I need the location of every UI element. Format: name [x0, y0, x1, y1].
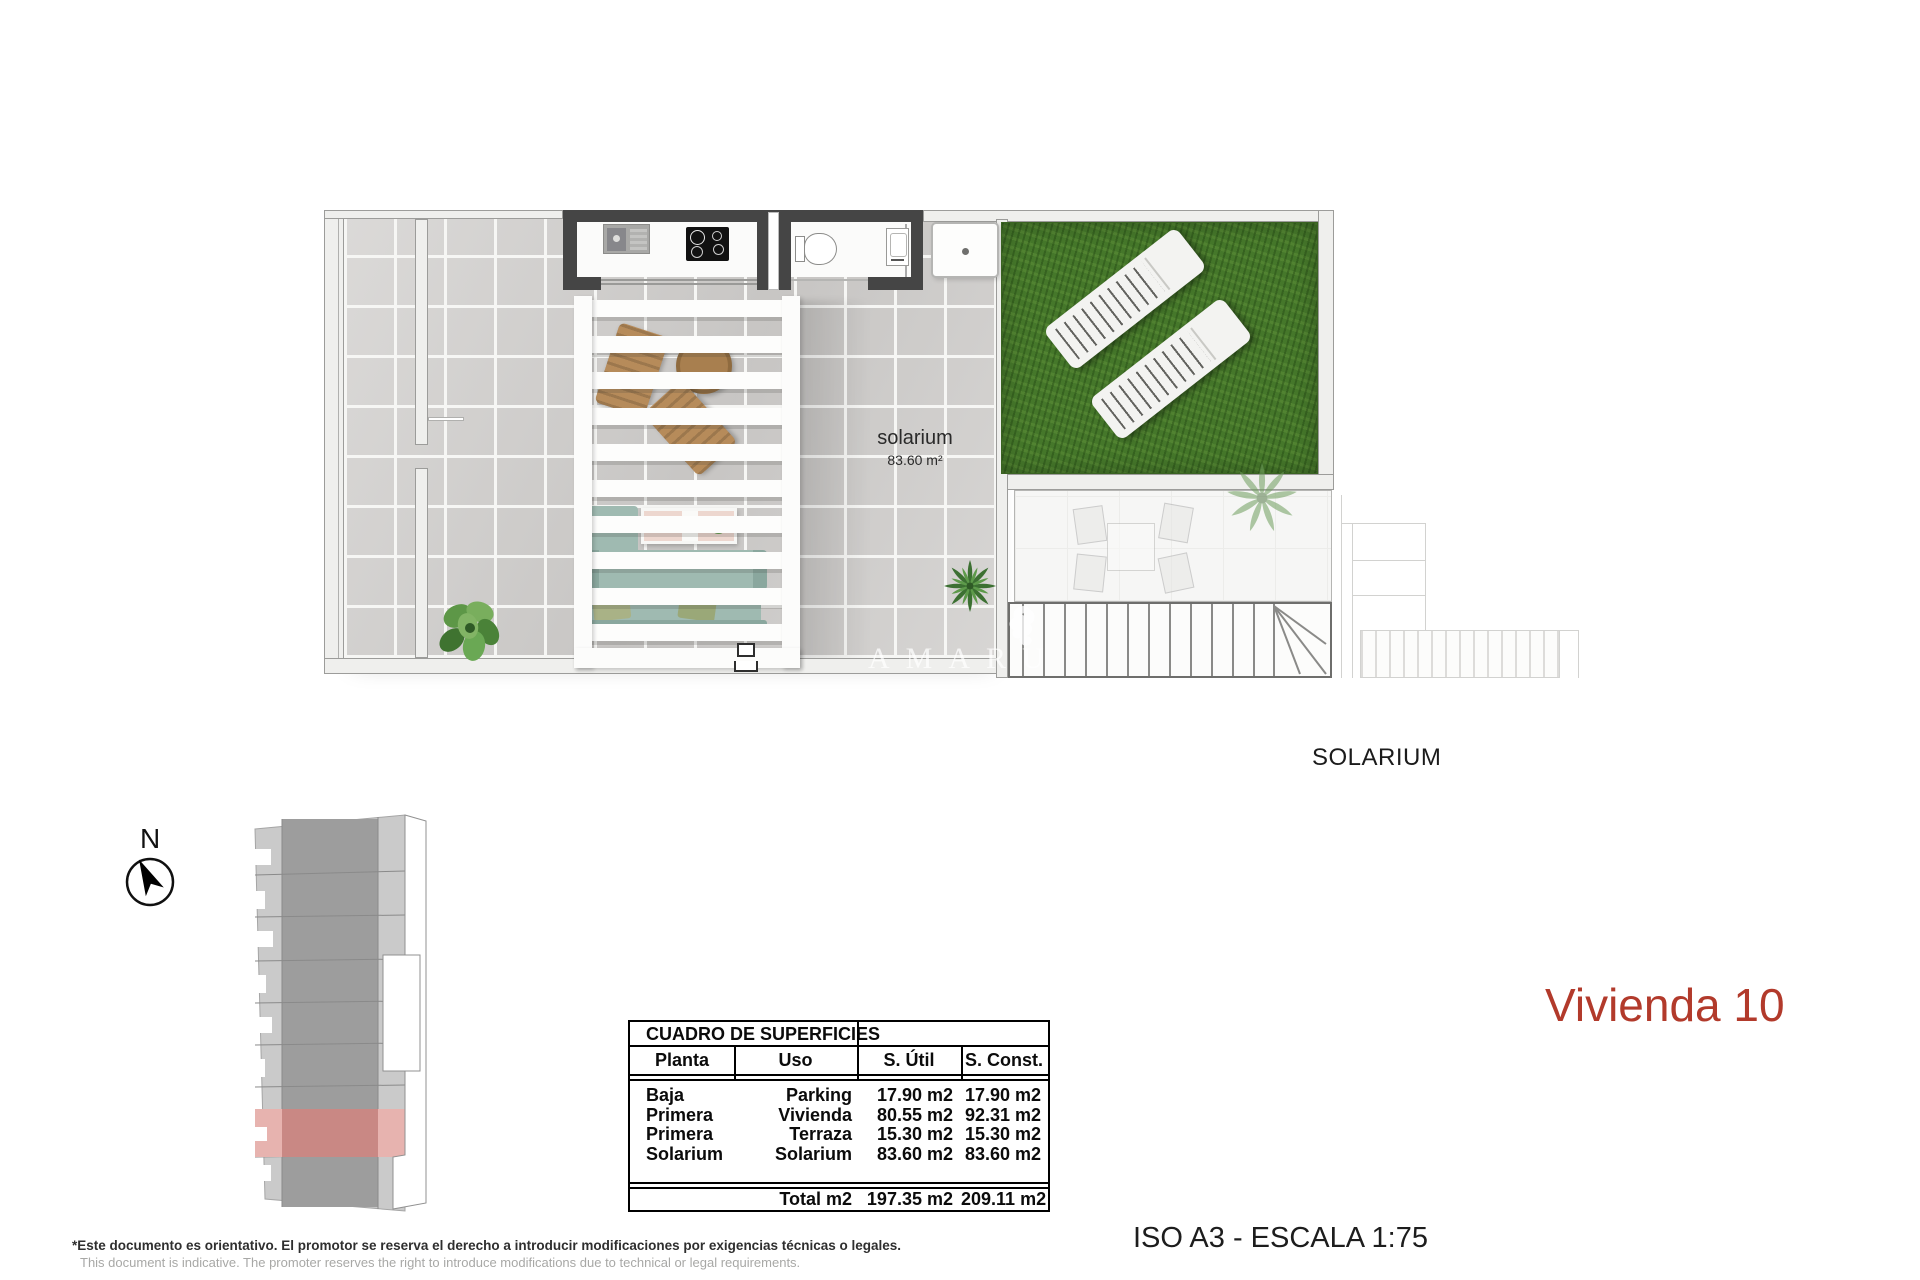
surfaces-header: Planta: [630, 1047, 734, 1074]
toilet-bowl: [804, 233, 837, 265]
shower-tray: [931, 222, 999, 278]
surface-cell: 17.90 m2: [961, 1086, 1047, 1106]
surfaces-total-row: Total m2 197.35 m2 209.11 m2: [630, 1189, 1048, 1210]
watermark-text: AMARU: [868, 642, 1060, 676]
total-cell: Total m2: [734, 1189, 857, 1210]
surfaces-body: BajaParking17.90 m217.90 m2PrimeraVivien…: [630, 1086, 1048, 1164]
ghost-outline: [1425, 523, 1426, 630]
table-line: [630, 1182, 1048, 1184]
lounger-slats: [1101, 332, 1211, 430]
partition-wall-upper: [415, 219, 428, 445]
floor-plan: solarium 83.60 m² AMARU: [0, 0, 1920, 720]
surfaces-title: CUADRO DE SUPERFICIES: [646, 1024, 880, 1045]
north-arrow: N: [112, 816, 192, 916]
ghost-dining-set: [1063, 495, 1203, 599]
wall-grass-right: [1318, 210, 1334, 490]
kitchen-wall-stub: [563, 277, 601, 290]
ghost-outline: [1352, 560, 1425, 561]
hob-icon: [686, 227, 729, 261]
total-cell: 197.35 m2: [857, 1189, 961, 1210]
ghost-outline: [1352, 595, 1425, 596]
ghost-chair: [1158, 552, 1195, 593]
surface-cell: 83.60 m2: [857, 1145, 961, 1165]
kitchen-counter-track2: [601, 283, 757, 285]
bath-wall-stub: [868, 277, 923, 290]
ghost-staircase: [1360, 630, 1560, 678]
lounger-slats: [1055, 262, 1165, 360]
sink-icon: [603, 224, 650, 254]
table-line: [630, 1079, 1048, 1081]
hob-burner: [713, 244, 724, 255]
service-pillar: [768, 212, 779, 290]
ghost-palm-plant: [1224, 460, 1300, 536]
floor-socket-symbol: [734, 661, 758, 672]
north-label: N: [140, 823, 160, 854]
surface-cell: Solarium: [630, 1145, 734, 1165]
hob-burner: [691, 246, 703, 258]
pergola-shadow: [798, 300, 870, 660]
ghost-table: [1107, 523, 1155, 571]
surface-row: BajaParking17.90 m217.90 m2: [630, 1086, 1048, 1106]
plan-sheet: solarium 83.60 m² AMARU SOLARIUM N: [0, 0, 1920, 1280]
surface-cell: Primera: [630, 1106, 734, 1126]
surface-cell: Solarium: [734, 1145, 857, 1165]
wall-top-left: [324, 210, 563, 219]
surface-cell: Vivienda: [734, 1106, 857, 1126]
hob-burner: [712, 231, 722, 241]
grass-area: [1001, 222, 1318, 474]
surface-row: PrimeraTerraza15.30 m215.30 m2: [630, 1125, 1048, 1145]
palm-plant: [942, 558, 998, 614]
disclaimer-en: This document is indicative. The promote…: [80, 1255, 800, 1270]
surface-cell: 92.31 m2: [961, 1106, 1047, 1126]
pergola-rail-left: [574, 296, 592, 668]
ghost-outline: [1341, 523, 1425, 524]
surface-cell: 15.30 m2: [857, 1125, 961, 1145]
surface-cell: 15.30 m2: [961, 1125, 1047, 1145]
wall-left-line: [338, 212, 339, 672]
room-name: solarium: [855, 427, 975, 449]
washer-handle: [891, 259, 904, 261]
ghost-chair: [1073, 554, 1107, 593]
surface-cell: Terraza: [734, 1125, 857, 1145]
ghost-outline: [1352, 523, 1353, 678]
surface-cell: 17.90 m2: [857, 1086, 961, 1106]
surfaces-header-row: Planta Uso S. Útil S. Const.: [630, 1047, 1048, 1074]
pergola-slats: [592, 300, 782, 648]
sink-faucet: [613, 235, 620, 242]
hob-burner: [690, 230, 705, 245]
bath-wall-left: [779, 210, 791, 290]
surface-row: PrimeraVivienda80.55 m292.31 m2: [630, 1106, 1048, 1126]
surface-row: SolariumSolarium83.60 m283.60 m2: [630, 1145, 1048, 1165]
surfaces-header: S. Útil: [857, 1047, 961, 1074]
ghost-outline: [1560, 630, 1578, 631]
site-plan: [233, 813, 428, 1215]
kitchen-counter-track: [601, 279, 757, 281]
washer-door: [890, 233, 907, 257]
plant: [430, 588, 510, 668]
table-divider: [857, 1022, 859, 1079]
door-leaf: [428, 417, 464, 421]
toilet-icon: [795, 233, 839, 265]
disclaimer-es: *Este documento es orientativo. El promo…: [72, 1238, 901, 1253]
surface-cell: Parking: [734, 1086, 857, 1106]
ghost-outline: [1578, 630, 1579, 678]
surface-cell: 83.60 m2: [961, 1145, 1047, 1165]
pergola-rail-right: [782, 296, 800, 668]
service-top-wall: [563, 210, 923, 222]
surfaces-table: CUADRO DE SUPERFICIES Planta Uso S. Útil…: [628, 1020, 1050, 1212]
surface-cell: 80.55 m2: [857, 1106, 961, 1126]
plan-caption: SOLARIUM: [1312, 744, 1441, 772]
table-divider: [734, 1045, 736, 1079]
surface-cell: Primera: [630, 1125, 734, 1145]
floor-socket-symbol: [737, 643, 755, 657]
dwelling-title: Vivienda 10: [1545, 978, 1785, 1032]
wall-top-right: [923, 210, 1334, 222]
scale-note: ISO A3 - ESCALA 1:75: [1133, 1222, 1428, 1255]
pergola-rail-bottom: [574, 648, 800, 668]
wall-left: [324, 210, 344, 674]
room-label: solarium 83.60 m²: [855, 427, 975, 471]
bath-door-track: [791, 279, 868, 281]
kitchen-wall-right: [757, 210, 768, 290]
surfaces-header: S. Const.: [961, 1047, 1047, 1074]
table-divider: [961, 1045, 963, 1079]
surface-cell: Baja: [630, 1086, 734, 1106]
shower-drain: [962, 248, 969, 255]
ghost-chair: [1158, 503, 1194, 544]
partition-wall-lower: [415, 468, 428, 658]
surfaces-header: Uso: [734, 1047, 857, 1074]
room-area: 83.60 m²: [855, 449, 975, 471]
sink-drainer: [630, 229, 647, 250]
washer-icon: [886, 228, 909, 266]
total-cell: 209.11 m2: [961, 1189, 1047, 1210]
highlighted-unit: [255, 1109, 405, 1157]
stair-winder-lines: [1270, 604, 1330, 676]
ghost-chair: [1073, 505, 1108, 545]
table-line: [630, 1074, 1048, 1076]
